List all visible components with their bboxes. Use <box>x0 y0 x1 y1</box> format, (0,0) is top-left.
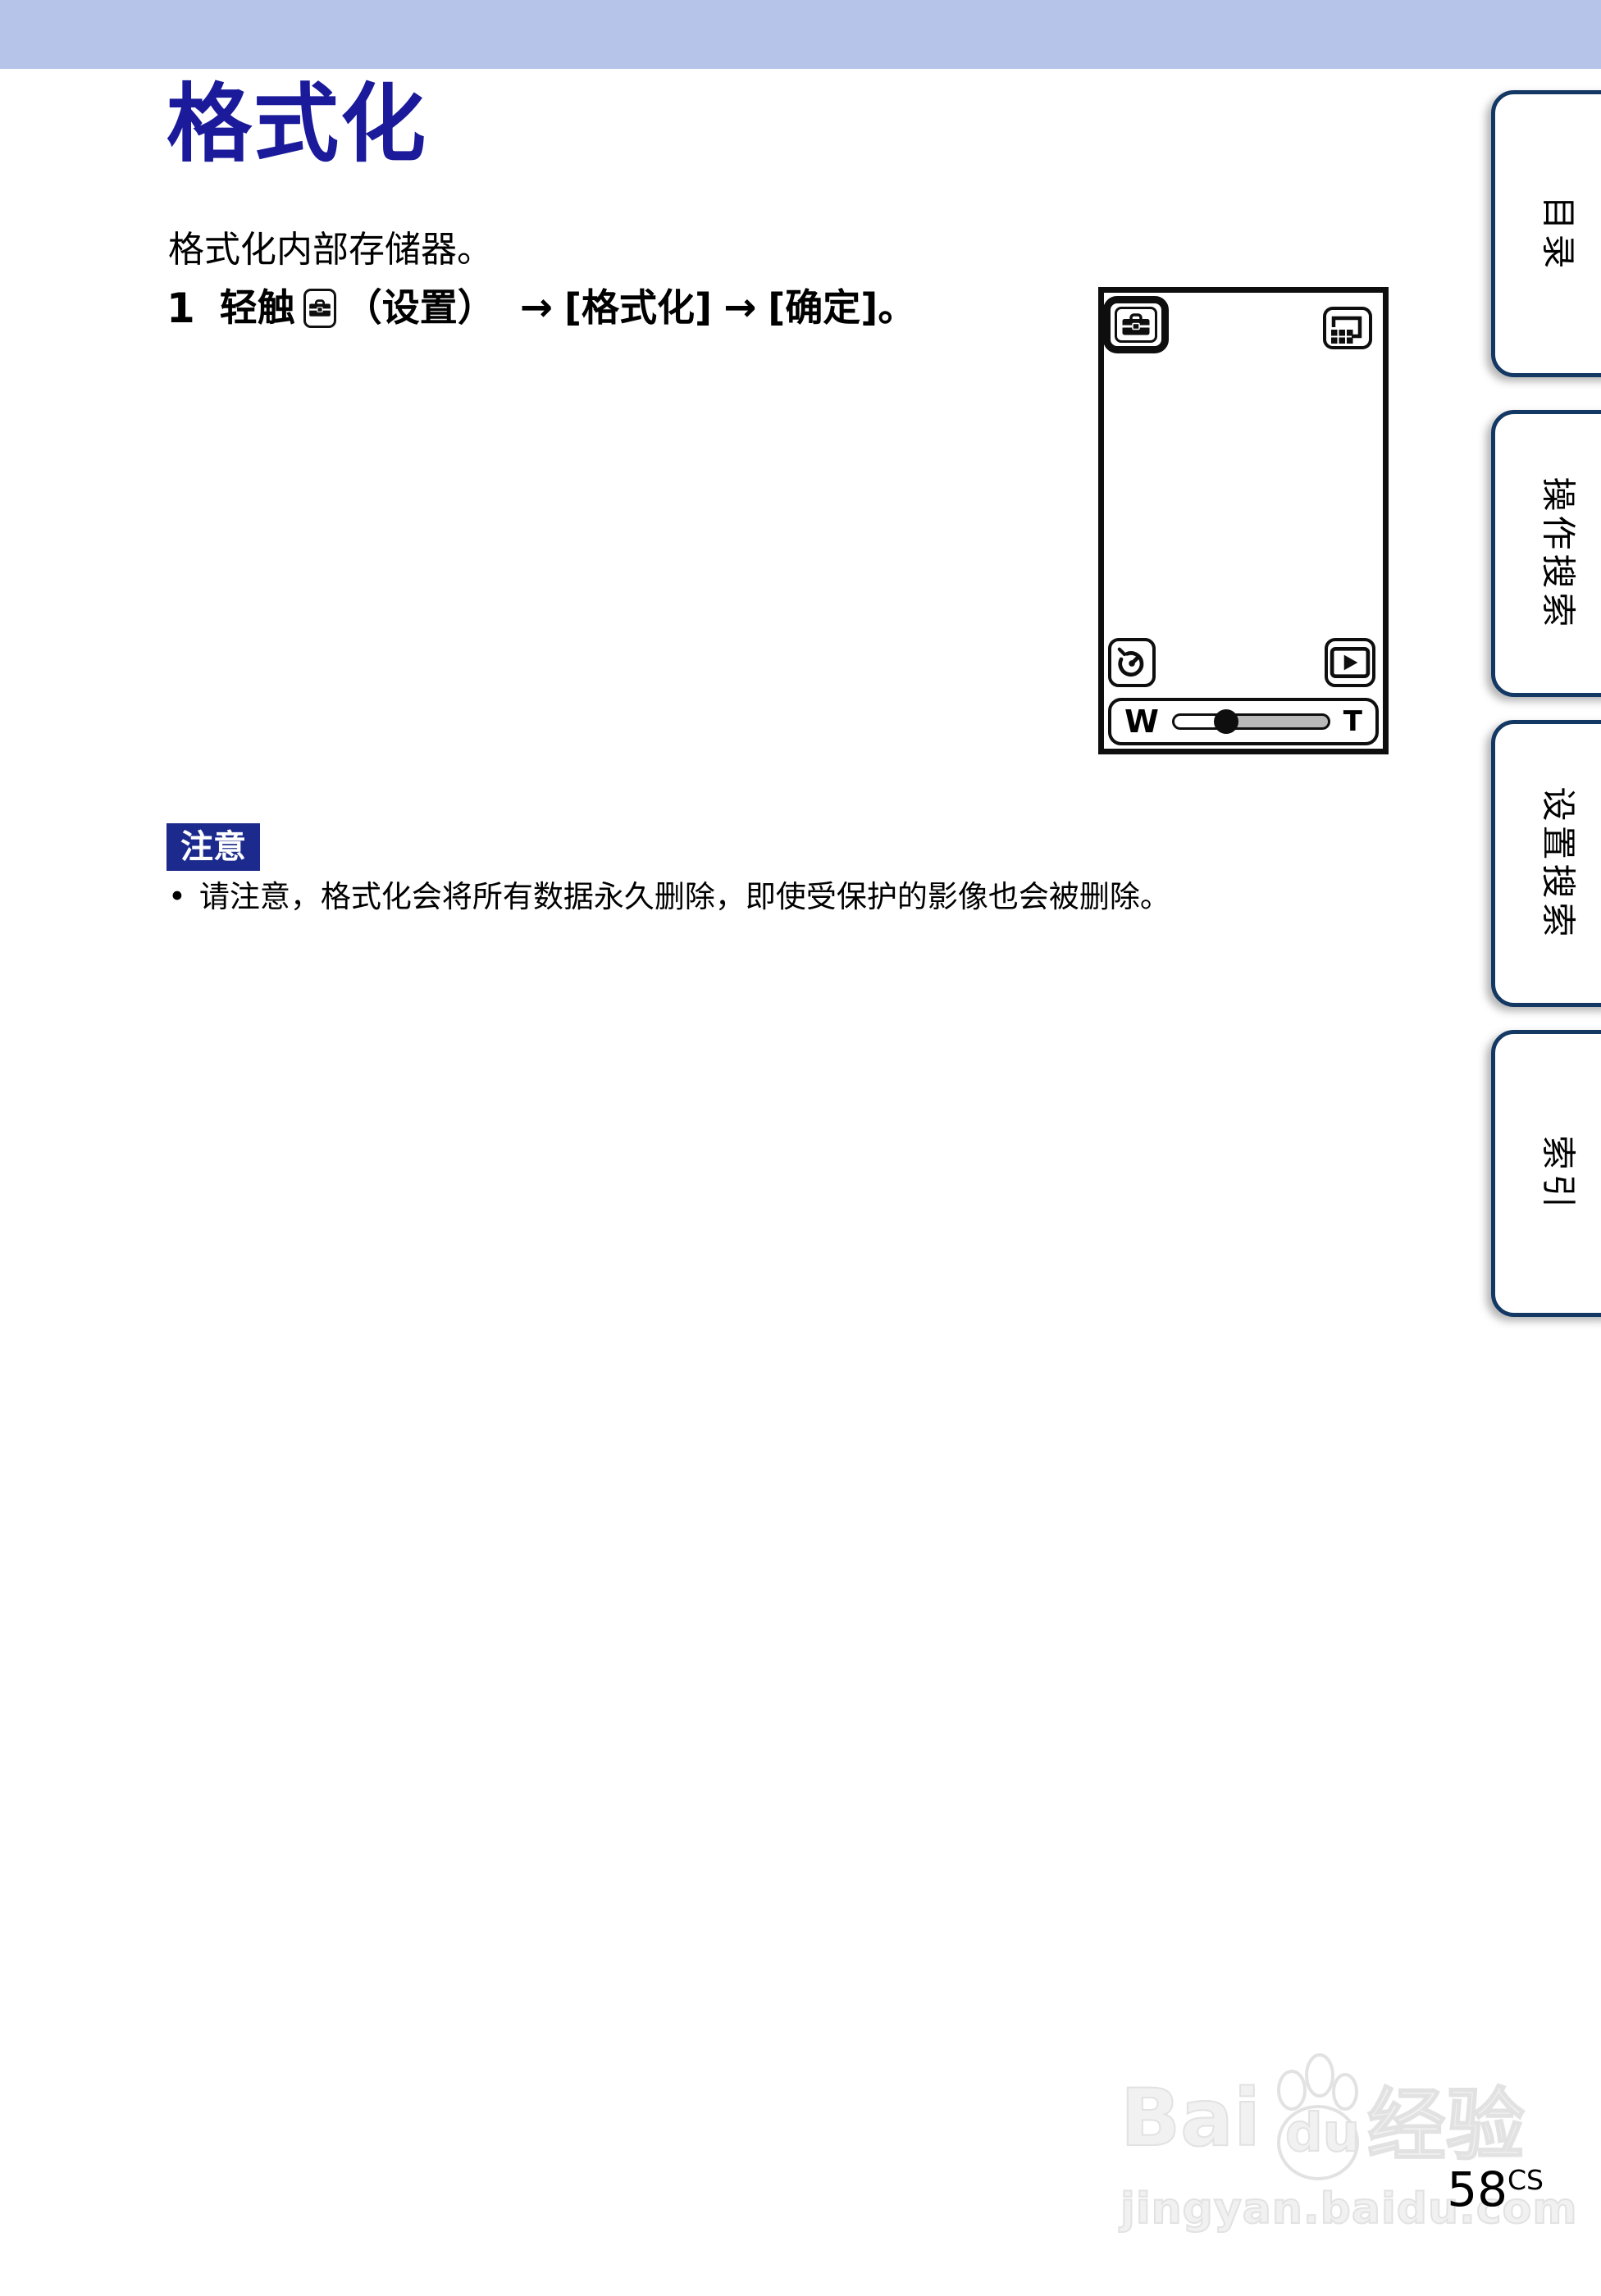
arrow-2: → <box>723 285 756 332</box>
note-text: 请注意，格式化会将所有数据永久删除，即使受保护的影像也会被删除。 <box>199 877 1170 917</box>
zoom-tele-label: T <box>1343 705 1362 738</box>
page-title: 格式化 <box>166 77 427 171</box>
arrow-1: → <box>520 285 553 332</box>
bullet: • <box>168 877 186 917</box>
shooting-mode-icon <box>1322 306 1373 350</box>
toolbox-icon <box>1115 307 1157 343</box>
zoom-bar: W T <box>1108 698 1379 745</box>
watermark-bai: Bai <box>1120 2072 1261 2164</box>
camera-screen-illustration: W T <box>1098 287 1389 754</box>
step-ok-label: [确定]。 <box>768 285 915 330</box>
watermark-du: du <box>1285 2103 1360 2164</box>
step-touch-label: 轻触 <box>220 285 295 330</box>
sidebar-tab-contents[interactable]: 目录 <box>1491 90 1601 377</box>
paw-icon: du <box>1261 2051 1367 2186</box>
sidebar-tab-operation-search[interactable]: 操作搜索 <box>1491 410 1601 697</box>
zoom-track <box>1172 713 1330 730</box>
toolbox-settings-icon <box>303 289 336 328</box>
watermark-jingyan: 经验 <box>1367 2061 1525 2175</box>
tab-label: 索引 <box>1535 1135 1585 1212</box>
intro-text: 格式化内部存储器。 <box>168 227 493 272</box>
playback-icon <box>1325 638 1375 687</box>
top-banner <box>0 0 1601 69</box>
note-badge: 注意 <box>166 823 260 871</box>
step-1-instruction: 1 轻触 （设置） → [格式化] → [确定]。 <box>166 284 915 333</box>
step-settings-label: （设置） <box>344 285 495 330</box>
zoom-knob <box>1214 709 1238 734</box>
step-number: 1 <box>166 284 195 333</box>
step-format-label: [格式化] <box>564 285 712 330</box>
zoom-wide-label: W <box>1124 704 1159 740</box>
note-text-line: • 请注意，格式化会将所有数据永久删除，即使受保护的影像也会被删除。 <box>168 877 1170 917</box>
self-timer-icon <box>1108 638 1156 687</box>
tab-label: 操作搜索 <box>1536 476 1586 631</box>
tab-label: 目录 <box>1535 195 1585 272</box>
sidebar-tab-settings-search[interactable]: 设置搜索 <box>1491 720 1601 1007</box>
tab-label: 设置搜索 <box>1536 786 1586 941</box>
settings-toolbox-icon-selected <box>1103 296 1169 353</box>
sidebar-tab-index[interactable]: 索引 <box>1491 1030 1601 1317</box>
page-number: 58CS <box>1447 2162 1544 2217</box>
